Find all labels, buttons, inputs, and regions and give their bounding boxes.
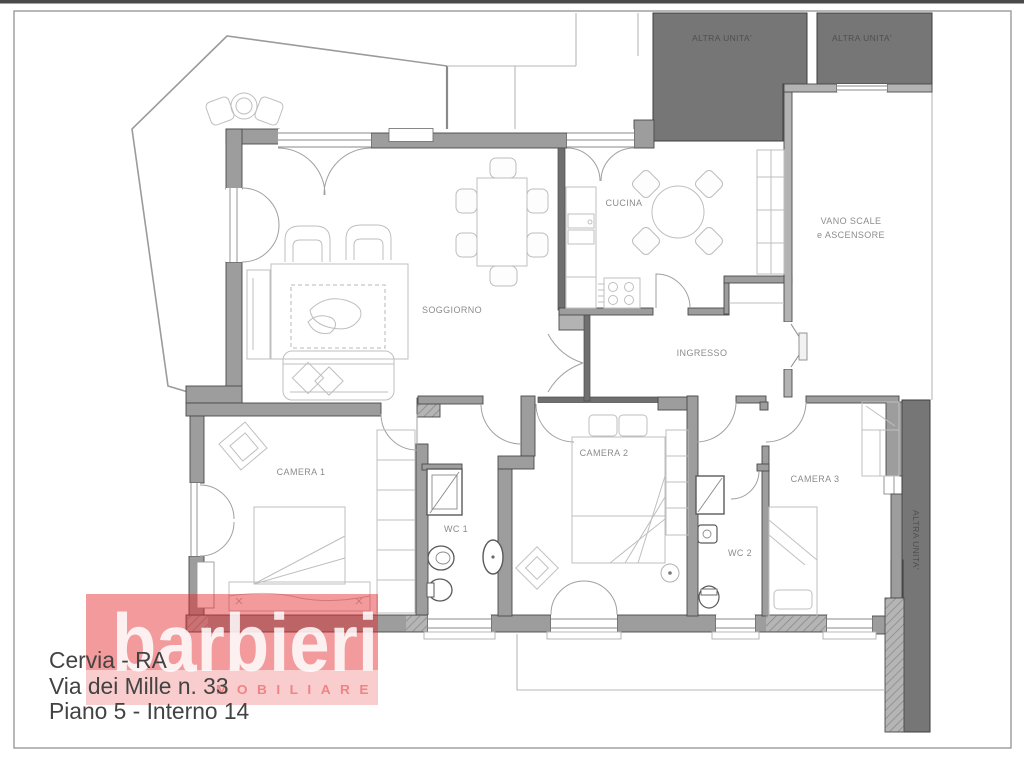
svg-text:CAMERA 2: CAMERA 2 (580, 448, 629, 458)
svg-text:WC 1: WC 1 (444, 524, 468, 534)
svg-text:CUCINA: CUCINA (606, 198, 643, 208)
svg-text:MOBILIARE: MOBILIARE (216, 682, 378, 697)
svg-text:e ASCENSORE: e ASCENSORE (817, 230, 885, 240)
svg-text:SOGGIORNO: SOGGIORNO (422, 305, 482, 315)
svg-text:CAMERA 1: CAMERA 1 (277, 467, 326, 477)
svg-text:ALTRA UNITA': ALTRA UNITA' (832, 33, 892, 43)
svg-text:CAMERA 3: CAMERA 3 (791, 474, 840, 484)
svg-text:Via dei Mille n. 33: Via dei Mille n. 33 (49, 673, 229, 699)
svg-text:ALTRA UNITA': ALTRA UNITA' (692, 33, 752, 43)
svg-text:Cervia - RA: Cervia - RA (49, 647, 168, 673)
svg-text:Piano 5 - Interno 14: Piano 5 - Interno 14 (49, 698, 250, 724)
svg-text:VANO SCALE: VANO SCALE (821, 216, 882, 226)
svg-text:ALTRA UNITA': ALTRA UNITA' (911, 510, 921, 570)
svg-text:INGRESSO: INGRESSO (677, 348, 728, 358)
svg-text:WC 2: WC 2 (728, 548, 752, 558)
